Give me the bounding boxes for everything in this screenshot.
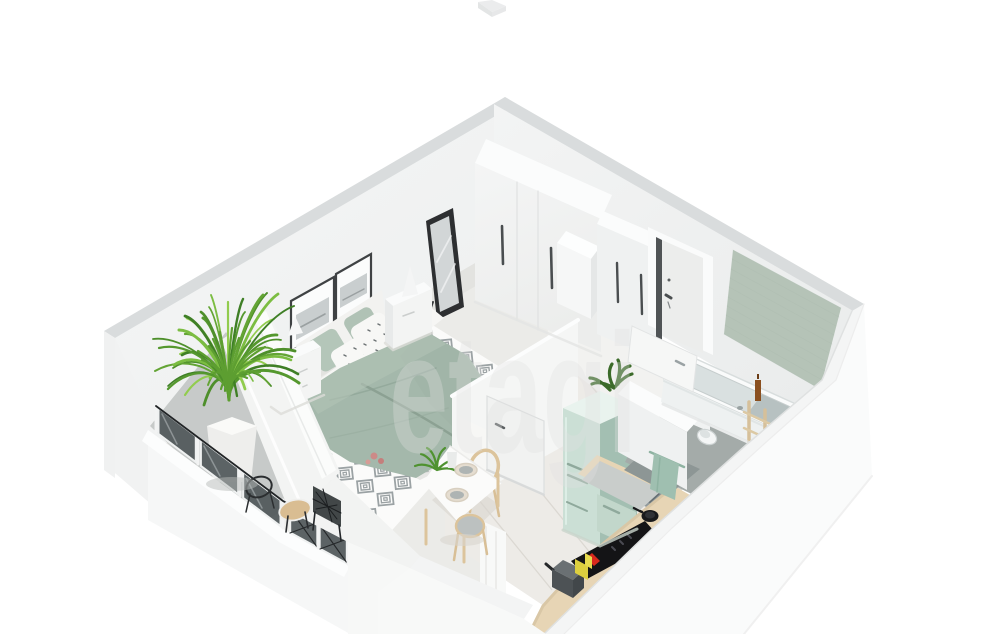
svg-text:etagi: etagi [389,299,637,489]
